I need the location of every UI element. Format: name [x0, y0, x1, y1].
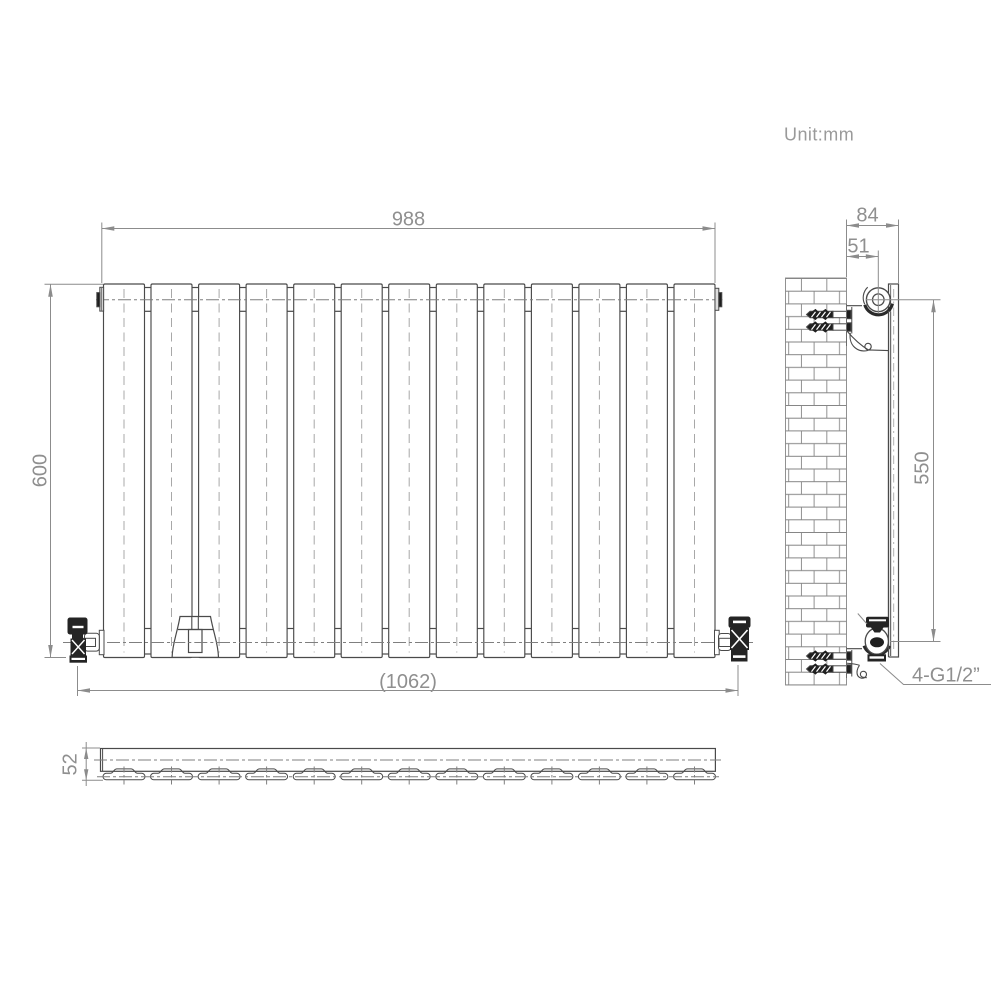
- svg-text:600: 600: [30, 454, 52, 487]
- svg-text:(1062): (1062): [379, 671, 437, 693]
- svg-text:52: 52: [60, 753, 82, 775]
- svg-text:4-G1/2”: 4-G1/2”: [912, 665, 980, 687]
- svg-text:Unit:mm: Unit:mm: [784, 125, 854, 145]
- svg-text:550: 550: [912, 451, 934, 484]
- svg-text:84: 84: [856, 205, 878, 227]
- svg-text:988: 988: [392, 209, 425, 231]
- svg-text:51: 51: [847, 236, 869, 258]
